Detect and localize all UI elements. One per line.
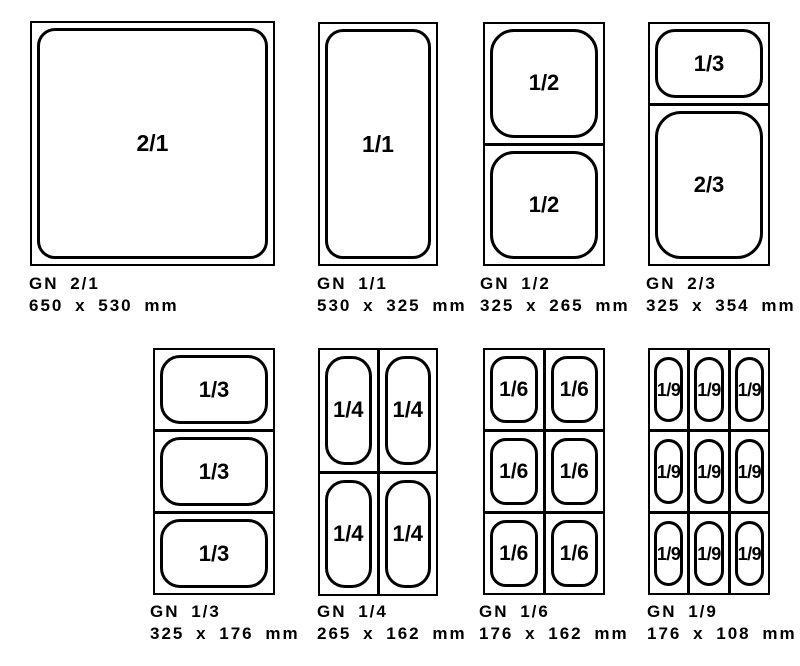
tray-outline: 1/6 <box>551 520 599 587</box>
cell-fraction-label: 1/1 <box>362 133 394 156</box>
cell-fraction-label: 1/9 <box>697 545 721 563</box>
pan-gn-1-2: 1/2 1/2 <box>483 22 605 266</box>
cell-fraction-label: 1/9 <box>657 545 681 563</box>
tray-outline: 1/9 <box>694 521 723 586</box>
pan-dimensions: 650 x 530 mm <box>29 295 179 317</box>
pan-dimensions: 176 x 108 mm <box>647 623 797 645</box>
pan-cell: 1/6 <box>546 432 604 511</box>
pan-cell: 1/6 <box>485 432 543 511</box>
pan-dimensions: 325 x 265 mm <box>480 295 630 317</box>
caption-gn-2-1: GN 2/1 650 x 530 mm <box>29 273 179 317</box>
pan-cell: 2/3 <box>650 106 768 264</box>
caption-gn-1-4: GN 1/4 265 x 162 mm <box>317 601 467 645</box>
tray-outline: 1/6 <box>551 438 599 505</box>
pan-cell: 1/9 <box>650 432 687 511</box>
tray-outline: 1/1 <box>325 29 431 259</box>
tray-outline: 1/2 <box>490 151 598 260</box>
tray-outline: 1/4 <box>385 480 432 589</box>
pan-cell: 1/9 <box>731 432 768 511</box>
tray-outline: 1/4 <box>325 480 372 589</box>
pan-cell: 1/6 <box>485 514 543 593</box>
tray-outline: 1/9 <box>654 357 683 422</box>
pan-gn-1-4: 1/4 1/4 1/4 1/4 <box>318 348 438 596</box>
cell-fraction-label: 1/9 <box>657 463 681 481</box>
tray-outline: 1/9 <box>735 357 764 422</box>
cell-fraction-label: 2/3 <box>694 174 725 196</box>
cell-fraction-label: 1/6 <box>560 379 589 400</box>
pan-cell: 1/9 <box>690 350 727 429</box>
tray-outline: 1/6 <box>551 356 599 423</box>
tray-outline: 1/9 <box>735 439 764 504</box>
cell-fraction-label: 1/9 <box>738 463 762 481</box>
cell-fraction-label: 2/1 <box>137 132 169 155</box>
cell-fraction-label: 1/9 <box>738 381 762 399</box>
cell-fraction-label: 1/4 <box>392 523 423 545</box>
cell-fraction-label: 1/6 <box>499 461 528 482</box>
pan-name: GN 1/9 <box>647 601 797 623</box>
pan-gn-1-3: 1/3 1/3 1/3 <box>153 348 275 595</box>
tray-outline: 1/3 <box>160 355 268 424</box>
pan-gn-1-6: 1/6 1/6 1/6 1/6 1/6 1/6 <box>483 348 605 595</box>
pan-dimensions: 325 x 354 mm <box>646 295 796 317</box>
caption-gn-1-3: GN 1/3 325 x 176 mm <box>150 601 300 645</box>
cell-fraction-label: 1/4 <box>333 523 364 545</box>
pan-cell: 1/9 <box>731 514 768 593</box>
cell-fraction-label: 1/9 <box>738 545 762 563</box>
pan-cell: 1/4 <box>320 474 377 595</box>
tray-outline: 1/9 <box>694 439 723 504</box>
pan-cell: 1/3 <box>650 24 768 103</box>
pan-gn-1-1: 1/1 <box>318 22 438 266</box>
caption-gn-1-6: GN 1/6 176 x 162 mm <box>479 601 629 645</box>
caption-gn-1-1: GN 1/1 530 x 325 mm <box>317 273 467 317</box>
cell-fraction-label: 1/3 <box>694 53 725 75</box>
cell-fraction-label: 1/6 <box>499 543 528 564</box>
pan-cell: 1/9 <box>690 514 727 593</box>
cell-fraction-label: 1/3 <box>199 461 230 483</box>
pan-name: GN 2/1 <box>29 273 179 295</box>
pan-cell: 1/2 <box>485 24 603 143</box>
pan-cell: 1/9 <box>690 432 727 511</box>
cell-fraction-label: 1/6 <box>560 461 589 482</box>
cell-fraction-label: 1/4 <box>333 399 364 421</box>
cell-fraction-label: 1/9 <box>657 381 681 399</box>
pan-cell: 1/3 <box>155 350 273 429</box>
pan-cell: 1/9 <box>731 350 768 429</box>
tray-outline: 1/4 <box>385 356 432 465</box>
cell-fraction-label: 1/2 <box>529 194 560 216</box>
pan-name: GN 1/2 <box>480 273 630 295</box>
pan-cell: 1/9 <box>650 350 687 429</box>
pan-cell: 1/6 <box>546 514 604 593</box>
caption-gn-1-9: GN 1/9 176 x 108 mm <box>647 601 797 645</box>
tray-outline: 1/4 <box>325 356 372 465</box>
cell-fraction-label: 1/2 <box>529 72 560 94</box>
cell-fraction-label: 1/9 <box>697 463 721 481</box>
tray-outline: 1/3 <box>160 437 268 506</box>
pan-cell: 2/1 <box>32 23 273 264</box>
pan-dimensions: 530 x 325 mm <box>317 295 467 317</box>
caption-gn-1-2: GN 1/2 325 x 265 mm <box>480 273 630 317</box>
pan-cell: 1/4 <box>380 350 437 471</box>
gastronorm-sizes-diagram: 2/1 GN 2/1 650 x 530 mm 1/1 GN 1/1 530 x… <box>0 0 800 666</box>
pan-gn-2-1: 2/1 <box>30 21 275 266</box>
pan-cell: 1/9 <box>650 514 687 593</box>
pan-dimensions: 176 x 162 mm <box>479 623 629 645</box>
tray-outline: 2/3 <box>655 111 763 259</box>
cell-fraction-label: 1/9 <box>697 381 721 399</box>
cell-fraction-label: 1/6 <box>499 379 528 400</box>
tray-outline: 1/9 <box>654 521 683 586</box>
pan-name: GN 1/4 <box>317 601 467 623</box>
cell-fraction-label: 1/4 <box>392 399 423 421</box>
tray-outline: 1/9 <box>654 439 683 504</box>
pan-gn-1-9: 1/9 1/9 1/9 1/9 1/9 1/9 <box>648 348 770 595</box>
pan-name: GN 1/6 <box>479 601 629 623</box>
tray-outline: 1/3 <box>655 29 763 98</box>
pan-cell: 1/4 <box>380 474 437 595</box>
tray-outline: 1/6 <box>490 520 538 587</box>
pan-cell: 1/6 <box>485 350 543 429</box>
pan-name: GN 2/3 <box>646 273 796 295</box>
cell-fraction-label: 1/3 <box>199 543 230 565</box>
pan-cell: 1/2 <box>485 146 603 265</box>
tray-outline: 1/6 <box>490 438 538 505</box>
pan-name: GN 1/1 <box>317 273 467 295</box>
pan-gn-2-3: 1/3 2/3 <box>648 22 770 266</box>
pan-dimensions: 265 x 162 mm <box>317 623 467 645</box>
pan-cell: 1/1 <box>320 24 436 264</box>
tray-outline: 1/3 <box>160 519 268 588</box>
tray-outline: 2/1 <box>37 28 268 259</box>
tray-outline: 1/9 <box>694 357 723 422</box>
caption-gn-2-3: GN 2/3 325 x 354 mm <box>646 273 796 317</box>
tray-outline: 1/6 <box>490 356 538 423</box>
cell-fraction-label: 1/3 <box>199 379 230 401</box>
pan-dimensions: 325 x 176 mm <box>150 623 300 645</box>
pan-cell: 1/4 <box>320 350 377 471</box>
cell-fraction-label: 1/6 <box>560 543 589 564</box>
pan-cell: 1/3 <box>155 514 273 593</box>
tray-outline: 1/2 <box>490 29 598 138</box>
tray-outline: 1/9 <box>735 521 764 586</box>
pan-name: GN 1/3 <box>150 601 300 623</box>
pan-cell: 1/6 <box>546 350 604 429</box>
pan-cell: 1/3 <box>155 432 273 511</box>
